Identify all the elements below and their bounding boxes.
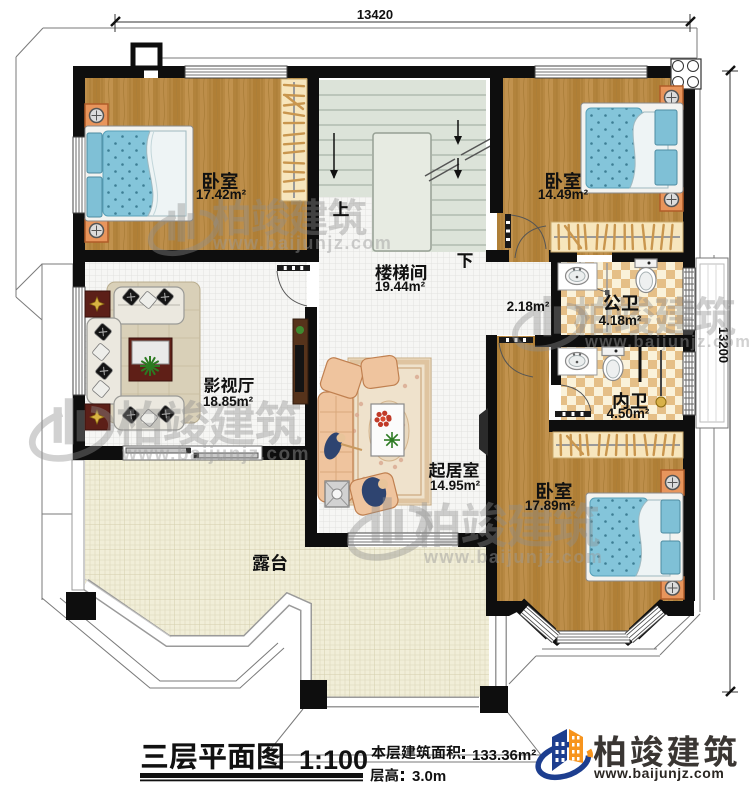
svg-text:14.49m²: 14.49m²: [538, 187, 589, 202]
svg-text:www.baijunjz.com: www.baijunjz.com: [593, 765, 724, 781]
svg-text:3.0m: 3.0m: [412, 768, 446, 785]
svg-text:4.50m²: 4.50m²: [607, 406, 650, 421]
svg-text:13420: 13420: [357, 7, 393, 22]
svg-text:19.44m²: 19.44m²: [375, 279, 426, 294]
svg-text:www.baijunjz.com: www.baijunjz.com: [212, 233, 392, 253]
svg-text:www.baijunjz.com: www.baijunjz.com: [423, 547, 603, 567]
svg-text:17.89m²: 17.89m²: [525, 498, 576, 513]
svg-text:4.18m²: 4.18m²: [599, 313, 642, 328]
svg-text:www.baijunjz.com: www.baijunjz.com: [584, 333, 750, 351]
svg-text:18.85m²: 18.85m²: [203, 394, 254, 409]
svg-text:1:100: 1:100: [299, 745, 368, 775]
svg-text:14.95m²: 14.95m²: [430, 478, 481, 493]
svg-text:17.42m²: 17.42m²: [196, 187, 247, 202]
svg-text:133.36m²: 133.36m²: [472, 747, 536, 764]
svg-text:2.18m²: 2.18m²: [507, 299, 550, 314]
svg-text:www.baijunjz.com: www.baijunjz.com: [121, 444, 310, 465]
